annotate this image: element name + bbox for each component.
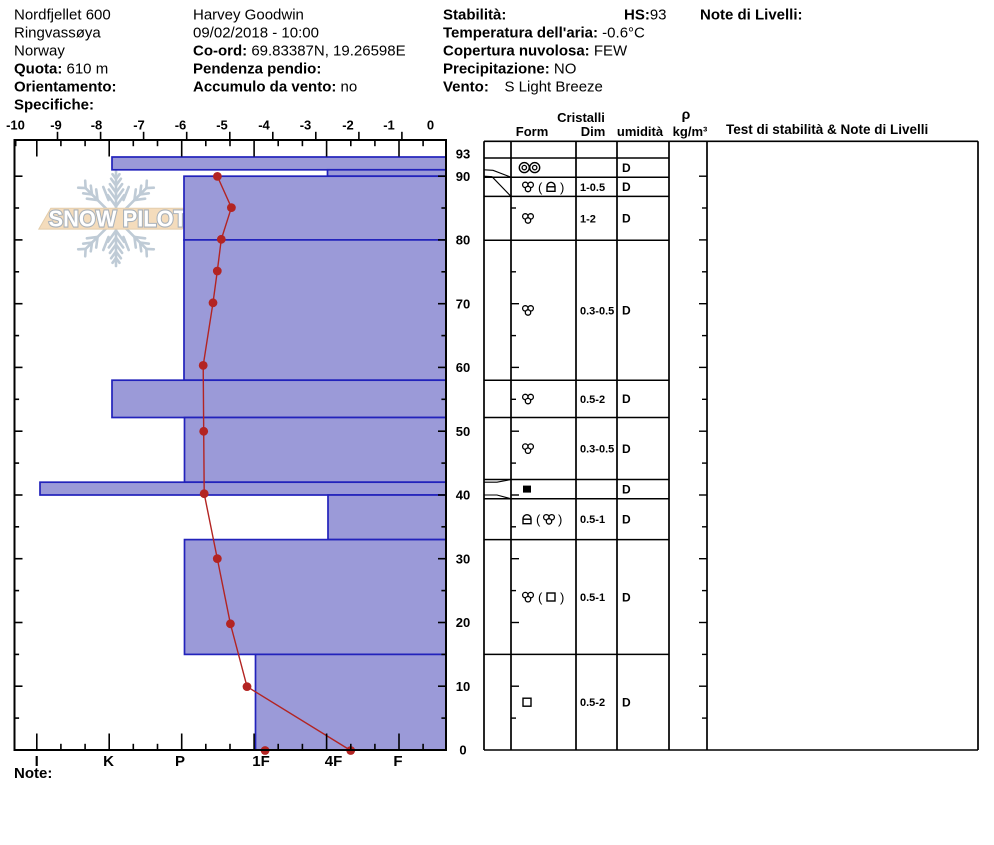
svg-text:50: 50: [456, 424, 470, 439]
svg-text:SNOW PILOT: SNOW PILOT: [49, 206, 188, 232]
svg-text:Note:: Note:: [14, 765, 52, 782]
svg-text:(: (: [538, 180, 543, 195]
svg-text:-1: -1: [383, 118, 395, 133]
svg-text:-3: -3: [300, 118, 312, 133]
svg-text:D: D: [622, 442, 631, 456]
svg-text:Ringvassøya: Ringvassøya: [14, 25, 101, 42]
svg-text:umidità: umidità: [617, 124, 664, 139]
svg-text:4F: 4F: [325, 753, 343, 770]
svg-text:Pendenza pendio:: Pendenza pendio:: [193, 61, 321, 78]
svg-text:90: 90: [456, 169, 470, 184]
svg-text:D: D: [622, 392, 631, 406]
svg-text:Orientamento:: Orientamento:: [14, 79, 117, 96]
svg-text:30: 30: [456, 551, 470, 566]
svg-text:93: 93: [456, 146, 470, 161]
svg-text:-7: -7: [133, 118, 145, 133]
svg-text:Nordfjellet 600: Nordfjellet 600: [14, 7, 111, 24]
svg-text:Test di stabilità & Note di Li: Test di stabilità & Note di Livelli: [726, 122, 928, 137]
svg-text:HS:93: HS:93: [624, 7, 667, 24]
svg-text:): ): [560, 590, 564, 605]
svg-text:Stabilità:: Stabilità:: [443, 7, 506, 24]
svg-text:P: P: [175, 753, 185, 770]
svg-text:Vento:S Light Breeze: Vento:S Light Breeze: [443, 79, 603, 96]
svg-text:20: 20: [456, 615, 470, 630]
svg-text:F: F: [393, 753, 402, 770]
svg-text:-8: -8: [91, 118, 103, 133]
svg-text:D: D: [622, 590, 631, 604]
svg-text:D: D: [622, 161, 631, 175]
svg-text:Copertura nuvolosa: FEW: Copertura nuvolosa: FEW: [443, 43, 628, 60]
svg-text:0.5-2: 0.5-2: [580, 697, 605, 709]
svg-text:Precipitazione: NO: Precipitazione: NO: [443, 61, 576, 78]
svg-text:(: (: [538, 590, 543, 605]
svg-text:Harvey Goodwin: Harvey Goodwin: [193, 7, 304, 24]
svg-text:Co-ord: 69.83387N, 19.26598E: Co-ord: 69.83387N, 19.26598E: [193, 43, 406, 60]
svg-text:Note di Livelli:: Note di Livelli:: [700, 7, 803, 24]
svg-text:0.5-2: 0.5-2: [580, 394, 605, 406]
svg-text:D: D: [622, 304, 631, 318]
svg-text:Dim: Dim: [581, 124, 606, 139]
svg-text:D: D: [622, 696, 631, 710]
svg-text:-5: -5: [216, 118, 228, 133]
svg-text:): ): [558, 512, 562, 527]
svg-text:D: D: [622, 212, 631, 226]
svg-text:D: D: [622, 482, 631, 496]
svg-text:K: K: [103, 753, 114, 770]
svg-text:80: 80: [456, 233, 470, 248]
svg-text:-9: -9: [50, 118, 62, 133]
svg-text:0.3-0.5: 0.3-0.5: [580, 305, 614, 317]
svg-text:0.3-0.5: 0.3-0.5: [580, 444, 614, 456]
svg-text:0: 0: [459, 743, 466, 758]
svg-text:ρ: ρ: [682, 106, 691, 122]
svg-text:10: 10: [456, 679, 470, 694]
svg-text:kg/m³: kg/m³: [673, 124, 708, 139]
svg-text:-6: -6: [175, 118, 187, 133]
svg-text:Specifiche:: Specifiche:: [14, 97, 94, 114]
svg-text:0: 0: [427, 118, 434, 133]
svg-text:-10: -10: [6, 118, 25, 133]
svg-text:D: D: [622, 513, 631, 527]
svg-text:Temperatura dell'aria: -0.6°C: Temperatura dell'aria: -0.6°C: [443, 25, 645, 42]
svg-text:60: 60: [456, 360, 470, 375]
svg-text:Norway: Norway: [14, 43, 65, 60]
svg-text:1F: 1F: [252, 753, 270, 770]
svg-text:Form: Form: [516, 124, 549, 139]
svg-text:-2: -2: [342, 118, 354, 133]
svg-text:Cristalli: Cristalli: [557, 110, 605, 125]
svg-text:Quota: 610 m: Quota: 610 m: [14, 61, 108, 78]
svg-text:0.5-1: 0.5-1: [580, 592, 605, 604]
svg-text:): ): [560, 180, 564, 195]
svg-text:0.5-1: 0.5-1: [580, 514, 605, 526]
svg-text:D: D: [622, 180, 631, 194]
svg-text:09/02/2018 - 10:00: 09/02/2018 - 10:00: [193, 25, 319, 42]
svg-text:1-2: 1-2: [580, 213, 596, 225]
svg-text:1-0.5: 1-0.5: [580, 182, 605, 194]
svg-text:40: 40: [456, 488, 470, 503]
svg-text:70: 70: [456, 296, 470, 311]
svg-text:Accumulo da vento: no: Accumulo da vento: no: [193, 79, 357, 96]
svg-text:(: (: [536, 512, 541, 527]
svg-text:-4: -4: [258, 118, 270, 133]
